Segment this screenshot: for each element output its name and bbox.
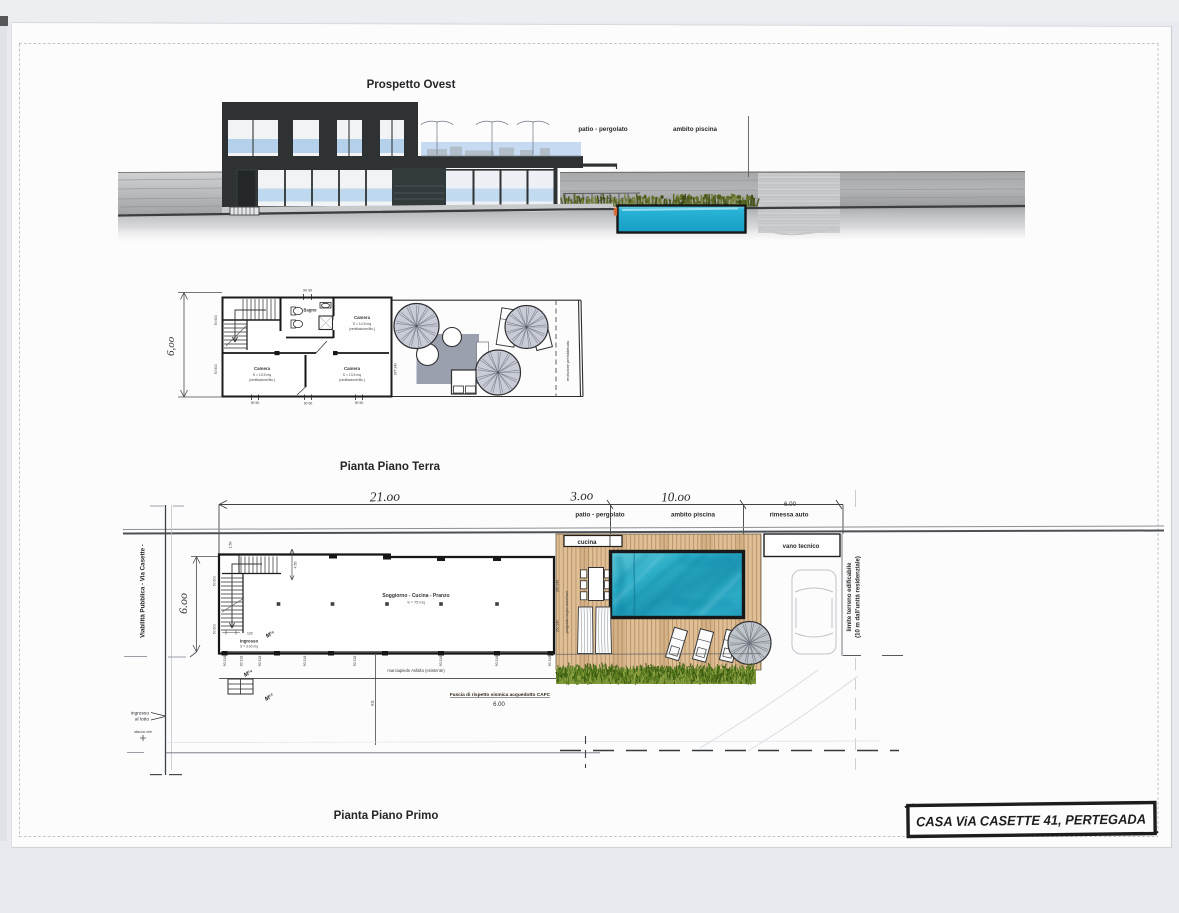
svg-text:limite terreno edificabile: limite terreno edificabile xyxy=(847,562,853,632)
svg-text:S = 3.00 mq: S = 3.00 mq xyxy=(240,645,258,649)
svg-text:S = 13.5 mq: S = 13.5 mq xyxy=(253,373,271,377)
svg-text:90 318: 90 318 xyxy=(240,656,244,667)
svg-text:Ingresso: Ingresso xyxy=(240,639,259,644)
svg-text:50 600: 50 600 xyxy=(214,364,218,374)
svg-text:6.00: 6.00 xyxy=(493,702,505,708)
svg-text:21.oo: 21.oo xyxy=(369,488,400,504)
svg-text:90 318: 90 318 xyxy=(258,656,262,667)
svg-text:CASA ViA CASETTE 41, PERTEGAD: CASA ViA CASETTE 41, PERTEGADA xyxy=(916,812,1146,830)
svg-text:90 90: 90 90 xyxy=(355,401,364,405)
svg-text:10.oo: 10.oo xyxy=(661,488,691,504)
svg-text:S = 75 mq: S = 75 mq xyxy=(407,601,424,605)
svg-text:ambito piscina: ambito piscina xyxy=(671,512,716,519)
svg-text:Pianta Piano Primo: Pianta Piano Primo xyxy=(334,810,439,822)
svg-text:50 600: 50 600 xyxy=(213,576,217,586)
svg-text:Bagno: Bagno xyxy=(303,308,316,313)
svg-text:Fascia di rispetto sismica acq: Fascia di rispetto sismica acquedotto CA… xyxy=(450,692,551,698)
svg-text:Camera: Camera xyxy=(254,366,271,371)
svg-text:Soggiorno - Cucina - Pranzo: Soggiorno - Cucina - Pranzo xyxy=(382,593,449,599)
svg-text:Pianta Piano Terra: Pianta Piano Terra xyxy=(340,461,441,473)
svg-text:120: 120 xyxy=(247,632,253,636)
svg-text:marciapiede Asfalto (esistente: marciapiede Asfalto (esistente) xyxy=(387,668,445,673)
svg-text:240 249: 240 249 xyxy=(556,580,560,592)
svg-text:1.50: 1.50 xyxy=(229,542,233,549)
svg-text:90 318: 90 318 xyxy=(223,656,227,667)
svg-text:90 90: 90 90 xyxy=(304,402,313,406)
svg-text:90 90: 90 90 xyxy=(251,401,260,405)
svg-text:90 318: 90 318 xyxy=(353,656,357,667)
svg-text:Prospetto Ovest: Prospetto Ovest xyxy=(367,79,456,91)
svg-text:patio - pergolato: patio - pergolato xyxy=(578,126,627,133)
svg-text:recinzione prefabbricata: recinzione prefabbricata xyxy=(566,340,570,381)
svg-text:vano tecnico: vano tecnico xyxy=(783,544,820,550)
svg-text:Viabilità Pubblica - Via Caset: Viabilità Pubblica - Via Casette - xyxy=(140,544,147,638)
svg-text:250 240: 250 240 xyxy=(556,620,560,632)
svg-text:6,oo: 6,oo xyxy=(165,336,177,356)
svg-text:S = 13.5 mq: S = 13.5 mq xyxy=(343,373,361,377)
svg-text:6.oo: 6.oo xyxy=(176,593,190,614)
svg-text:Camera: Camera xyxy=(354,315,371,320)
svg-text:90 318: 90 318 xyxy=(439,656,443,667)
svg-text:(10 m dall’unità residenziale): (10 m dall’unità residenziale) xyxy=(856,556,862,638)
svg-text:(ventilazione/illu.): (ventilazione/illu.) xyxy=(249,378,275,382)
svg-text:90 90: 90 90 xyxy=(303,289,312,293)
svg-text:pergolato legno lamellare: pergolato legno lamellare xyxy=(565,591,569,634)
svg-text:al lotto: al lotto xyxy=(135,717,149,723)
svg-text:90 318: 90 318 xyxy=(303,656,307,667)
svg-text:90 318: 90 318 xyxy=(548,656,552,667)
svg-text:811: 811 xyxy=(371,700,375,706)
svg-text:377 240: 377 240 xyxy=(394,363,398,375)
svg-text:Camera: Camera xyxy=(344,366,361,371)
svg-text:50 600: 50 600 xyxy=(213,624,217,634)
svg-text:50 600: 50 600 xyxy=(214,315,218,325)
svg-text:6.00: 6.00 xyxy=(784,501,797,508)
svg-text:ambito piscina: ambito piscina xyxy=(673,126,718,133)
svg-text:4.50: 4.50 xyxy=(294,562,298,569)
svg-text:3.oo: 3.oo xyxy=(569,487,594,503)
svg-text:allaccio rete: allaccio rete xyxy=(134,730,152,734)
svg-text:90 318: 90 318 xyxy=(495,656,499,667)
svg-text:patio - pergolato: patio - pergolato xyxy=(575,512,624,519)
svg-text:cucina: cucina xyxy=(577,540,597,546)
svg-text:rimessa auto: rimessa auto xyxy=(770,512,809,519)
svg-text:(ventilazione/illu.): (ventilazione/illu.) xyxy=(349,327,375,331)
svg-text:(ventilazione/illu.): (ventilazione/illu.) xyxy=(339,378,365,382)
svg-text:ingresso: ingresso xyxy=(131,711,149,717)
svg-text:S = 14.5 mq: S = 14.5 mq xyxy=(353,322,371,326)
